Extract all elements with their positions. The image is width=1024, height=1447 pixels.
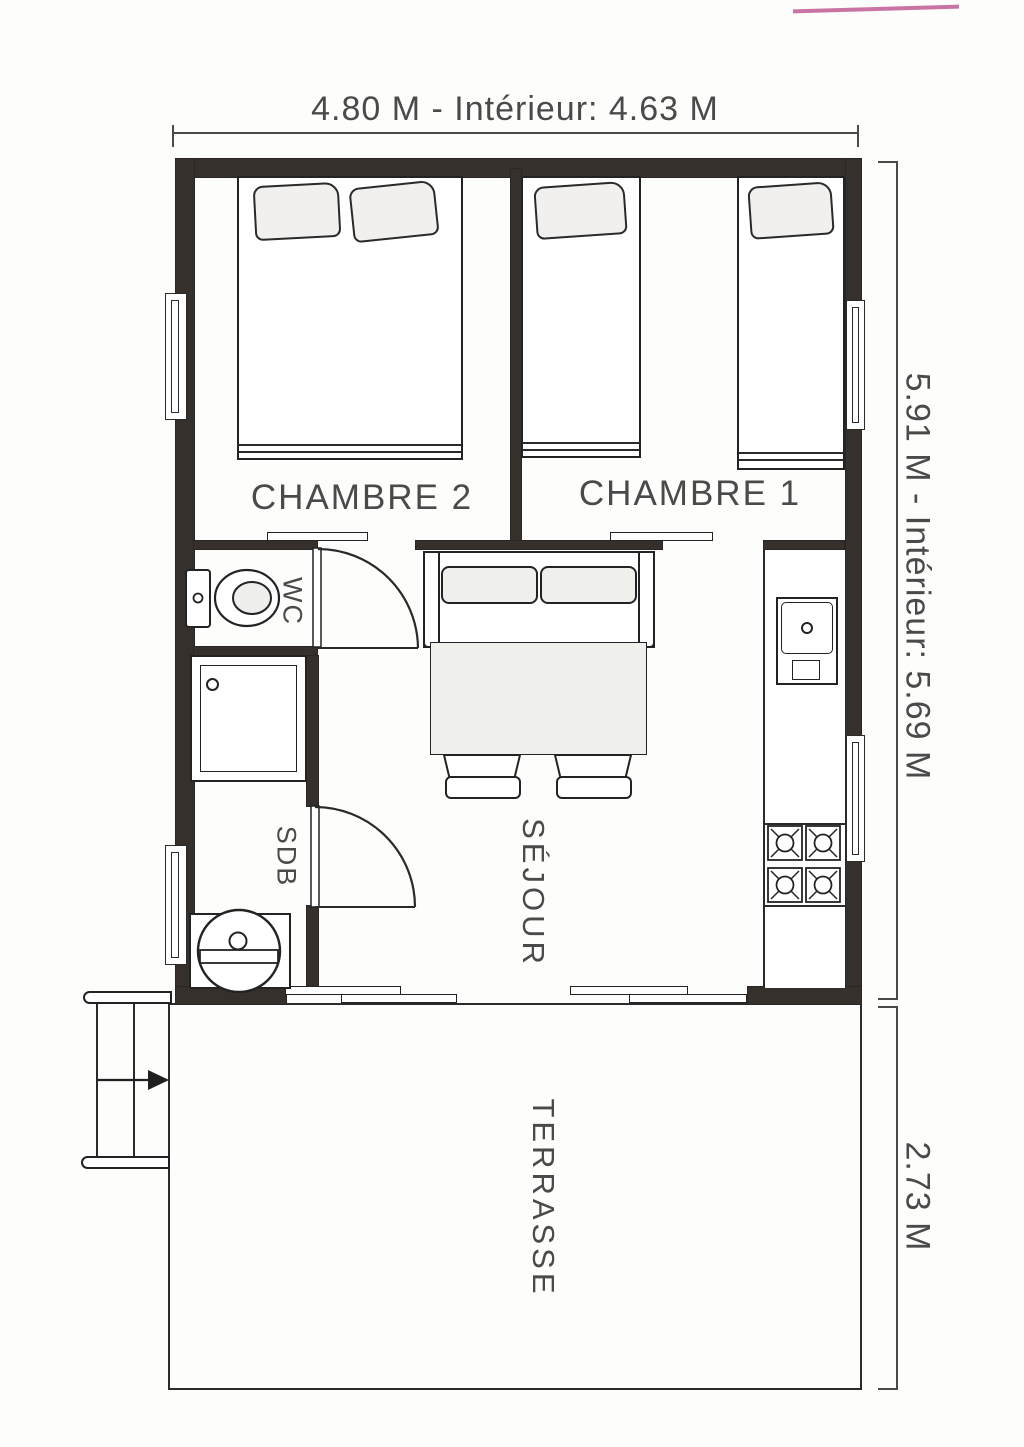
chair-symbol xyxy=(555,755,631,798)
room-label-terrace: TERRASSE xyxy=(525,1078,561,1318)
washbasin-symbol xyxy=(190,910,290,992)
wc-door-symbol xyxy=(313,548,418,648)
right-dimension-label-terrace: 2.73 M xyxy=(898,1097,937,1297)
floor-plan-page: 4.80 M - Intérieur: 4.63 M CHAMBRE 2 CHA… xyxy=(0,0,1024,1447)
room-label-bedroom1: CHAMBRE 1 xyxy=(540,474,840,514)
stove-burners-symbol xyxy=(768,826,840,902)
room-label-living-room: SÉJOUR xyxy=(515,783,551,1003)
plan-symbols-overlay xyxy=(0,0,1024,1447)
room-label-bedroom2: CHAMBRE 2 xyxy=(212,478,512,518)
bathroom-door-symbol xyxy=(311,806,415,907)
room-label-wc: WC xyxy=(277,552,308,652)
stairs-direction-arrow xyxy=(97,1070,169,1090)
room-label-bathroom: SDB xyxy=(271,807,302,907)
right-dimension-label-main: 5.91 M - Intérieur: 5.69 M xyxy=(898,277,937,877)
toilet-symbol xyxy=(186,570,279,627)
chair-symbol xyxy=(444,755,520,798)
top-dimension-label: 4.80 M - Intérieur: 4.63 M xyxy=(215,90,815,129)
